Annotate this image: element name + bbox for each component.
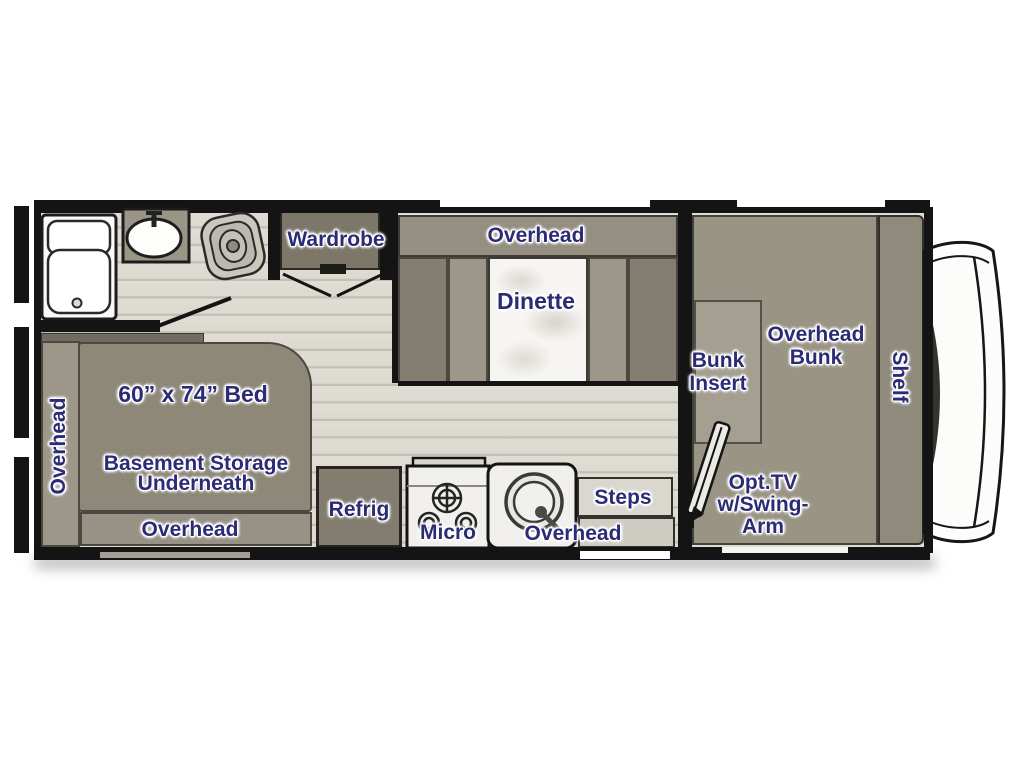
bathroom-sink — [123, 209, 189, 262]
label-refrig: Refrig — [329, 500, 390, 520]
label-bunk-insert-line1: Bunk — [689, 349, 746, 372]
label-basement-storage: Basement Storage Underneath — [104, 454, 288, 494]
wardrobe-door-lines — [283, 274, 383, 296]
label-bunk-insert: Bunk Insert — [689, 349, 746, 395]
floorplan-canvas: Wardrobe Overhead Dinette Overhead 60” x… — [0, 0, 1024, 768]
label-overhead-bunk: Overhead Bunk — [768, 323, 865, 369]
toilet — [198, 210, 268, 283]
label-shelf: Shelf — [889, 351, 909, 402]
label-dinette-overhead: Overhead — [488, 226, 585, 246]
label-overhead-bunk-line2: Bunk — [768, 346, 865, 369]
label-wardrobe: Wardrobe — [287, 230, 384, 250]
label-opt-tv-line1: Opt.TV — [718, 472, 809, 494]
label-opt-tv-line3: Arm — [718, 516, 809, 538]
label-bunk-insert-line2: Insert — [689, 372, 746, 395]
label-bed-overhead-bottom: Overhead — [142, 520, 239, 540]
label-basement-storage-line1: Basement Storage — [104, 454, 288, 474]
label-bed-size: 60” x 74” Bed — [118, 384, 268, 404]
label-overhead-bunk-line1: Overhead — [768, 323, 865, 346]
label-basement-storage-line2: Underneath — [104, 474, 288, 494]
label-steps: Steps — [594, 488, 651, 508]
label-dinette: Dinette — [497, 291, 575, 311]
label-micro: Micro — [420, 523, 476, 543]
shower — [42, 215, 116, 319]
label-kitchen-overhead: Overhead — [525, 524, 622, 544]
label-bed-overhead-side: Overhead — [49, 398, 69, 495]
label-opt-tv-line2: w/Swing- — [718, 494, 809, 516]
label-opt-tv: Opt.TV w/Swing- Arm — [718, 472, 809, 538]
